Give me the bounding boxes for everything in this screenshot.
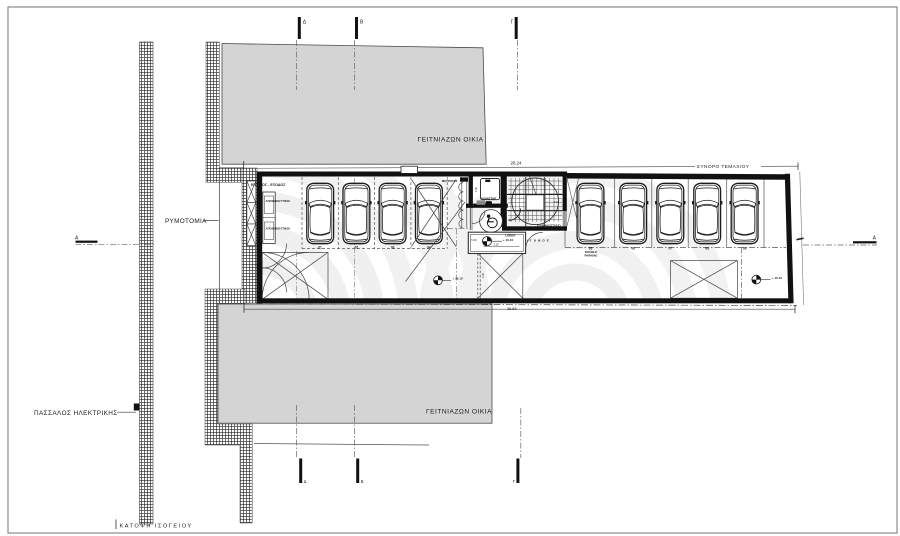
svg-text:01: 01 bbox=[318, 245, 322, 249]
svg-text:ΠΑΣΣΑΛΟΣ ΗΛΕΚΤΡΙΚΗΣ: ΠΑΣΣΑΛΟΣ ΗΛΕΚΤΡΙΚΗΣ bbox=[34, 410, 118, 417]
svg-text:09: 09 bbox=[743, 246, 747, 250]
svg-text:ΣΥΝΟΡΟ ΤΕΜΑΧΙΟΥ: ΣΥΝΟΡΟ ΤΕΜΑΧΙΟΥ bbox=[697, 164, 750, 170]
svg-text:28.24: 28.24 bbox=[511, 160, 523, 165]
svg-text:ΓΕΙΤΝΙΑΖΩΝ ΟΙΚΙΑ: ΓΕΙΤΝΙΑΖΩΝ ΟΙΚΙΑ bbox=[426, 409, 492, 416]
svg-text:Δ: Δ bbox=[304, 479, 307, 484]
svg-text:06: 06 bbox=[631, 246, 635, 250]
svg-text:PARKING: PARKING bbox=[584, 253, 598, 257]
svg-text:35.63: 35.63 bbox=[507, 307, 517, 311]
svg-text:ΡΥΜΟΤΟΜΙΑ: ΡΥΜΟΤΟΜΙΑ bbox=[165, 218, 207, 225]
svg-text:ΑΠΟΘΗΚΕΥΤΙΚΟΙ: ΑΠΟΘΗΚΕΥΤΙΚΟΙ bbox=[266, 226, 290, 230]
svg-text:ΑΠΟΘΗΚΕΥΤΙΚΟΙ: ΑΠΟΘΗΚΕΥΤΙΚΟΙ bbox=[266, 199, 290, 203]
svg-text:ΓΕΙΤΝΙΑΖΩΝ ΟΙΚΙΑ: ΓΕΙΤΝΙΑΖΩΝ ΟΙΚΙΑ bbox=[418, 137, 484, 144]
svg-text:Β: Β bbox=[361, 479, 364, 484]
svg-text:LOBBY: LOBBY bbox=[505, 234, 517, 238]
svg-text:5.30: 5.30 bbox=[471, 238, 477, 242]
svg-text:08: 08 bbox=[705, 246, 709, 250]
svg-text:02: 02 bbox=[355, 245, 359, 249]
svg-text:ΕΙΣΟΔΟΣ - ΕΞΟΔΟΣ: ΕΙΣΟΔΟΣ - ΕΞΟΔΟΣ bbox=[251, 183, 285, 187]
svg-text:ΜΕΤΡΗΤΕΣ: ΜΕΤΡΗΤΕΣ bbox=[442, 179, 458, 183]
svg-text:1.80: 1.80 bbox=[474, 186, 478, 192]
svg-text:+ 16.10: + 16.10 bbox=[772, 276, 782, 280]
svg-text:03: 03 bbox=[391, 245, 395, 249]
svg-text:Ι Ε Β Φ Ο Ε: Ι Ε Β Φ Ο Ε bbox=[527, 239, 550, 243]
svg-text:07: 07 bbox=[669, 246, 673, 250]
svg-text:2.30: 2.30 bbox=[494, 243, 500, 247]
svg-text:ΚΑΤΟΨΗ ΙΣΟΓΕΙΟΥ: ΚΑΤΟΨΗ ΙΣΟΓΕΙΟΥ bbox=[120, 523, 193, 529]
svg-text:ΚΟΜΙΣΤΗΡ: ΚΟΜΙΣΤΗΡ bbox=[481, 197, 496, 201]
svg-text:3.30: 3.30 bbox=[554, 200, 560, 204]
svg-text:Γ: Γ bbox=[511, 20, 514, 26]
svg-text:+ 16.10: + 16.10 bbox=[453, 277, 463, 281]
svg-text:2.40: 2.40 bbox=[481, 272, 485, 278]
svg-text:+ 16.10: + 16.10 bbox=[503, 238, 514, 242]
